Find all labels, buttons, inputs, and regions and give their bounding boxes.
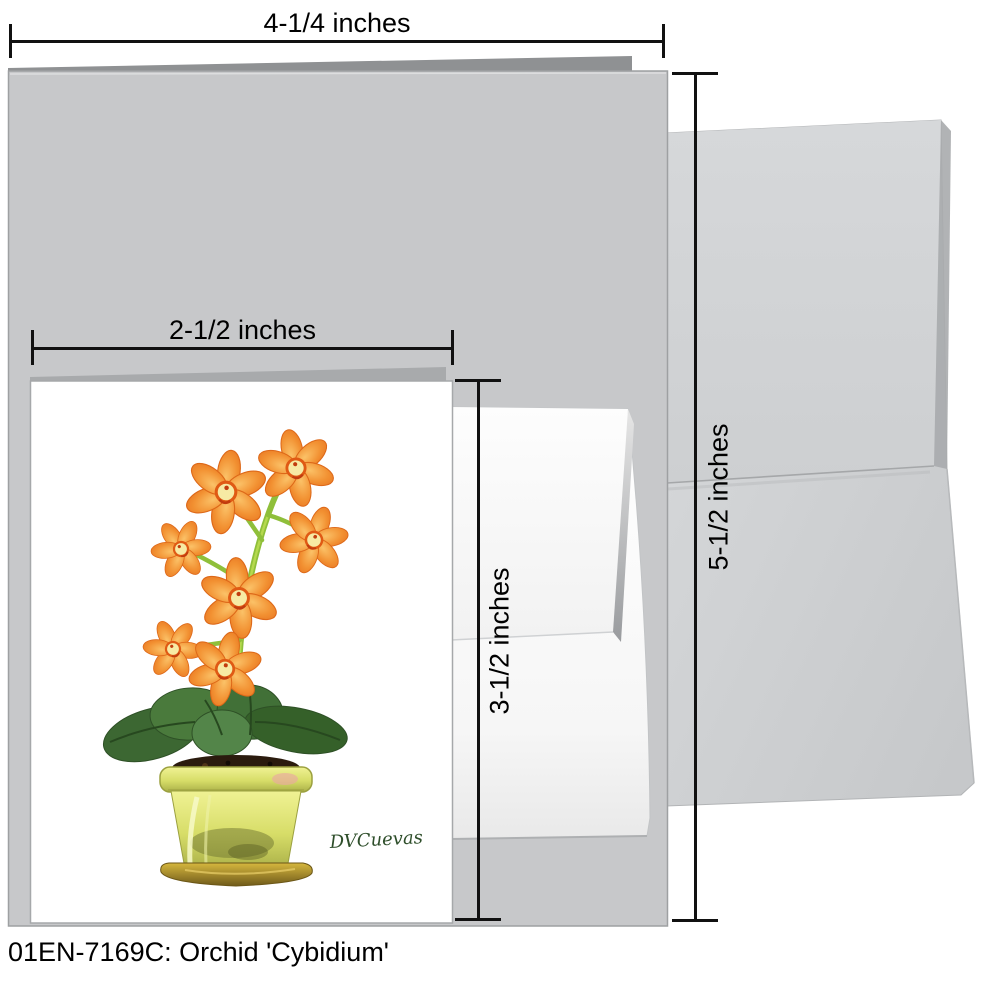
dimension-tick [451, 330, 454, 365]
large-card-width-dimension-line [10, 40, 664, 43]
dimension-tick [9, 24, 12, 58]
small-card-width-label: 2-1/2 inches [32, 315, 453, 346]
card-and-envelope-scene: DVCuevas [0, 0, 984, 984]
dimension-tick [672, 919, 718, 922]
small-card-width-dimension-line [32, 347, 453, 350]
small-envelope [451, 407, 650, 839]
product-caption: 01EN-7169C: Orchid 'Cybidium' [8, 937, 389, 968]
large-card-width-label: 4-1/4 inches [10, 8, 664, 39]
dimension-tick [672, 72, 718, 75]
product-screenshot: DVCuevas 4-1/4 inches 2-1/2 inches 5-1/2… [0, 0, 984, 984]
large-card-top-highlight [10, 73, 666, 74]
plant-pot [160, 767, 312, 886]
dimension-tick [455, 918, 501, 921]
small-card-height-dimension-line [477, 381, 480, 921]
large-card-height-dimension-line [694, 73, 697, 922]
dimension-tick [455, 379, 501, 382]
dimension-tick [31, 330, 34, 365]
small-card-height-label: 3-1/2 inches [485, 567, 516, 714]
dimension-tick [662, 24, 665, 58]
large-card-height-label: 5-1/2 inches [704, 423, 735, 570]
